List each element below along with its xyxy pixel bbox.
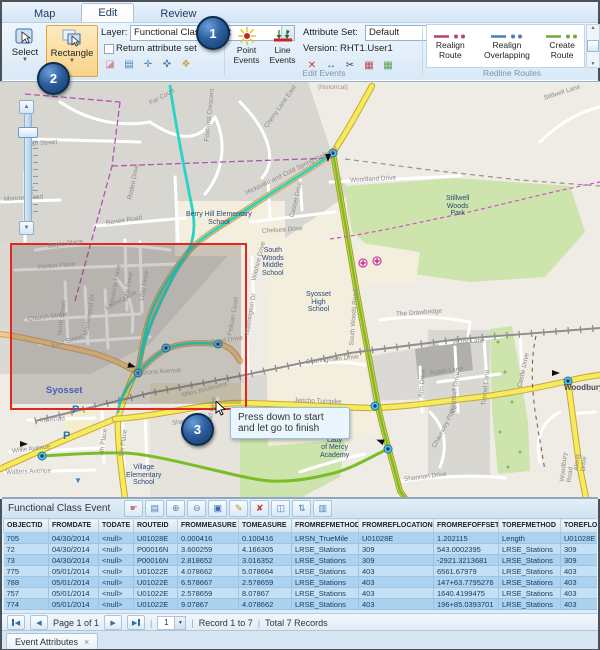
- select-icon: [14, 27, 36, 47]
- table-cell: 73: [4, 555, 49, 566]
- table-cell: U01022E: [134, 599, 178, 610]
- redline-button-label: Realign Overlapping: [474, 41, 541, 61]
- table-cell: 1640.4199475: [434, 588, 499, 599]
- parking-icon: P: [72, 404, 79, 416]
- ribbon-tab-bar: Map Edit Review: [2, 2, 598, 23]
- table-cell: LRSE_Stations: [292, 544, 359, 555]
- total-records-label: Total 7 Records: [265, 618, 328, 628]
- table-row[interactable]: 70504/30/2014<null>U01028E0.0004160.1004…: [4, 533, 598, 544]
- table-row[interactable]: 7304/30/2014<null>P00016N2.8186523.01635…: [4, 555, 598, 566]
- export-records-icon[interactable]: ▥: [313, 500, 332, 517]
- drain-marker-icon: ▼: [74, 476, 82, 485]
- table-row[interactable]: 75705/01/2014<null>U01022E2.5786598.0786…: [4, 588, 598, 599]
- table-cell: P00016N: [134, 544, 178, 555]
- zoom-to-selection-icon[interactable]: ⊕: [166, 500, 185, 517]
- sort-records-icon[interactable]: ⇅: [292, 500, 311, 517]
- application-window: Map Edit Review Select ▼ Rectangle ▼ Lay…: [0, 0, 600, 650]
- select-button[interactable]: Select ▼: [6, 25, 44, 75]
- tab-label: Event Attributes: [15, 637, 78, 647]
- tab-edit[interactable]: Edit: [81, 3, 134, 22]
- table-cell: LRSN_TrueMile: [292, 533, 359, 544]
- table-title: Functional Class Event: [8, 503, 110, 514]
- select-polygon-icon[interactable]: ❖: [178, 57, 194, 73]
- table-cell: 309: [359, 544, 434, 555]
- table-cell: <null>: [99, 533, 134, 544]
- realign-overlapping-button[interactable]: Realign Overlapping: [474, 32, 541, 61]
- table-cell: 9.07867: [178, 599, 239, 610]
- column-header[interactable]: TOMEASURE: [239, 519, 292, 533]
- zoom-slider-handle[interactable]: [18, 127, 38, 138]
- route-end-arrow-icon: [552, 370, 560, 376]
- table-cell: 05/01/2014: [49, 566, 99, 577]
- zoom-in-button[interactable]: ▲: [19, 100, 34, 114]
- column-header[interactable]: TOREFLOCATION: [561, 519, 598, 533]
- table-cell: 309: [359, 555, 434, 566]
- table-cell: 788: [4, 577, 49, 588]
- scroll-up-icon[interactable]: ▲: [588, 25, 598, 31]
- table-cell: 4.078662: [178, 566, 239, 577]
- map-tooltip: Press down to start and let go to finish: [230, 407, 350, 439]
- table-cell: 196+85.0393701: [434, 599, 499, 610]
- return-attribute-set-label: Return attribute set: [116, 43, 197, 54]
- table-cell: P00016N: [134, 555, 178, 566]
- parking-icon: P: [63, 430, 70, 442]
- attribute-set-label: Attribute Set:: [303, 27, 358, 38]
- table-cell: U01028E: [561, 533, 598, 544]
- table-cell: 543.0002395: [434, 544, 499, 555]
- separator: |: [150, 618, 152, 628]
- table-cell: LRSE_Stations: [499, 588, 561, 599]
- table-cell: 403: [359, 566, 434, 577]
- table-cell: 4.166305: [239, 544, 292, 555]
- table-cell: 309: [561, 555, 598, 566]
- table-cell: LRSE_Stations: [292, 566, 359, 577]
- realign-route-button[interactable]: Realign Route: [427, 32, 474, 61]
- table-cell: U01028E: [134, 533, 178, 544]
- page-number-input[interactable]: 1: [157, 616, 175, 630]
- select-line-icon[interactable]: ✜: [159, 57, 175, 73]
- redline-group-label: Redline Routes: [426, 68, 598, 78]
- next-page-button[interactable]: ▶: [104, 615, 122, 630]
- point-events-label: Point Events: [229, 46, 264, 66]
- table-cell: 0.000416: [178, 533, 239, 544]
- selection-mini-toolbar: ◪▤✛✜❖: [102, 57, 194, 73]
- table-cell: 2.578659: [239, 577, 292, 588]
- zoom-slider-ticks: [33, 141, 38, 216]
- tab-map[interactable]: Map: [18, 5, 71, 22]
- table-cell: <null>: [99, 599, 134, 610]
- table-cell: 72: [4, 544, 49, 555]
- table-cell: U01022E: [134, 566, 178, 577]
- previous-page-button[interactable]: ◀: [30, 615, 48, 630]
- eraser-icon[interactable]: ◪: [102, 57, 118, 73]
- redline-gallery: Realign RouteRealign OverlappingCreate R…: [426, 24, 585, 68]
- point-events-button[interactable]: Point Events: [229, 26, 264, 73]
- table-cell: 6561.67979: [434, 566, 499, 577]
- chevron-down-icon: ▼: [22, 58, 28, 62]
- column-header[interactable]: OBJECTID: [4, 519, 49, 533]
- selection-rectangle[interactable]: [10, 243, 247, 410]
- table-cell: <null>: [99, 544, 134, 555]
- scroll-down-icon[interactable]: ▼: [588, 61, 598, 67]
- table-cell: 147+63.7795276: [434, 577, 499, 588]
- chevron-down-icon[interactable]: ▼: [175, 616, 186, 630]
- table-cell: 705: [4, 533, 49, 544]
- table-cell: 05/01/2014: [49, 599, 99, 610]
- table-cell: 403: [561, 599, 598, 610]
- column-header[interactable]: TODATE: [99, 519, 134, 533]
- table-cell: 403: [359, 588, 434, 599]
- table-cell: LRSE_Stations: [292, 588, 359, 599]
- table-cell: LRSE_Stations: [292, 599, 359, 610]
- table-cell: 403: [561, 588, 598, 599]
- column-header[interactable]: FROMMEASURE: [178, 519, 239, 533]
- table-toolbar: ☛▤⊕⊖▣✎✘◫⇅▥: [122, 500, 332, 517]
- related-records-icon[interactable]: ◫: [271, 500, 290, 517]
- table-cell: 757: [4, 588, 49, 599]
- select-point-icon[interactable]: ✛: [140, 57, 156, 73]
- callout-3: 3: [181, 413, 214, 446]
- table-cell: LRSE_Stations: [499, 555, 561, 566]
- separator: |: [191, 618, 193, 628]
- table-cell: 6.578667: [178, 577, 239, 588]
- table-cell: 05/01/2014: [49, 588, 99, 599]
- column-header[interactable]: FROMREFMETHOD: [292, 519, 359, 533]
- route-end-arrow-icon: [20, 441, 28, 447]
- attribute-list-icon[interactable]: ▤: [121, 57, 137, 73]
- chevron-down-icon: ▼: [69, 59, 75, 63]
- redline-button-label: Realign Route: [427, 41, 474, 61]
- table-cell: 3.600259: [178, 544, 239, 555]
- table-header-row: OBJECTIDFROMDATETODATEROUTEIDFROMMEASURE…: [4, 519, 598, 533]
- table-cell: U01022E: [134, 577, 178, 588]
- clear-selection-icon[interactable]: ▤: [145, 500, 164, 517]
- table-cell: 04/30/2014: [49, 555, 99, 566]
- table-cell: 05/01/2014: [49, 577, 99, 588]
- line-events-button[interactable]: Line Events: [265, 26, 300, 73]
- table-row[interactable]: 78805/01/2014<null>U01022E6.5786672.5786…: [4, 577, 598, 588]
- table-cell: LRSE_Stations: [499, 566, 561, 577]
- column-header[interactable]: ROUTEID: [134, 519, 178, 533]
- redline-button-label: Create Route: [540, 41, 584, 61]
- table-cell: 3.016352: [239, 555, 292, 566]
- select-records-icon[interactable]: ☛: [124, 500, 143, 517]
- point-events-icon: [237, 26, 257, 46]
- table-cell: 4.078662: [239, 599, 292, 610]
- route-end-arrow-icon: [325, 154, 331, 162]
- edit-events-group-label: Edit Events: [226, 68, 422, 78]
- table-cell: Length: [499, 533, 561, 544]
- column-header[interactable]: FROMDATE: [49, 519, 99, 533]
- table-cell: 0.100416: [239, 533, 292, 544]
- table-cell: <null>: [99, 566, 134, 577]
- close-icon[interactable]: ×: [84, 637, 89, 647]
- table-cell: LRSE_Stations: [499, 577, 561, 588]
- table-cell: 403: [359, 577, 434, 588]
- rectangle-select-icon: [61, 28, 83, 48]
- first-page-button[interactable]: ◀: [7, 615, 25, 630]
- scroll-thumb[interactable]: [587, 40, 599, 52]
- create-route-button[interactable]: Create Route: [540, 32, 584, 61]
- return-attribute-set-checkbox[interactable]: [104, 44, 114, 54]
- table-cell: <null>: [99, 588, 134, 599]
- save-icon[interactable]: ▣: [208, 500, 227, 517]
- table-cell: 774: [4, 599, 49, 610]
- table-pager: ◀ ◀ Page 1 of 1 ▶ ▶ | 1 ▼ | Record 1 to …: [2, 613, 598, 631]
- zoom-out-button[interactable]: ▼: [19, 221, 34, 235]
- gallery-scrollbar[interactable]: ▲ ▼: [586, 24, 600, 68]
- column-header[interactable]: FROMREFLOCATION: [359, 519, 434, 533]
- attribute-table-panel: Functional Class Event ☛▤⊕⊖▣✎✘◫⇅▥ OBJECT…: [2, 497, 598, 615]
- ribbon-toolbar: Select ▼ Rectangle ▼ Layer: Functional C…: [2, 23, 598, 80]
- table-cell: 2.818652: [178, 555, 239, 566]
- separator: |: [258, 618, 260, 628]
- page-label: Page 1 of 1: [53, 618, 99, 628]
- table-row[interactable]: 7204/30/2014<null>P00016N3.6002594.16630…: [4, 544, 598, 555]
- table-cell: 775: [4, 566, 49, 577]
- column-header[interactable]: FROMREFOFFSET: [434, 519, 499, 533]
- group-separator: [422, 25, 423, 75]
- table-cell: 403: [359, 599, 434, 610]
- version-text: Version: RHT1.User1: [303, 43, 393, 54]
- table-cell: 8.07867: [239, 588, 292, 599]
- line-events-label: Line Events: [265, 46, 300, 66]
- table-cell: 04/30/2014: [49, 544, 99, 555]
- table-cell: 403: [561, 566, 598, 577]
- table-cell: 309: [561, 544, 598, 555]
- table-cell: -2921.3213681: [434, 555, 499, 566]
- table-cell: 2.578659: [178, 588, 239, 599]
- table-cell: 403: [561, 577, 598, 588]
- table-cell: 04/30/2014: [49, 533, 99, 544]
- line-events-icon: [272, 26, 294, 46]
- table-cell: LRSE_Stations: [292, 555, 359, 566]
- table-cell: 5.078664: [239, 566, 292, 577]
- record-range-label: Record 1 to 7: [199, 618, 253, 628]
- table-cell: LRSE_Stations: [499, 544, 561, 555]
- bottom-tab-bar: Event Attributes ×: [2, 630, 598, 649]
- tab-event-attributes[interactable]: Event Attributes ×: [6, 633, 98, 649]
- pan-to-selection-icon[interactable]: ⊖: [187, 500, 206, 517]
- table-cell: LRSE_Stations: [499, 599, 561, 610]
- mouse-cursor-icon: [215, 401, 227, 416]
- table-cell: U01028E: [359, 533, 434, 544]
- table-title-bar: Functional Class Event ☛▤⊕⊖▣✎✘◫⇅▥: [2, 499, 598, 518]
- table-cell: LRSE_Stations: [292, 577, 359, 588]
- column-header[interactable]: TOREFMETHOD: [499, 519, 561, 533]
- table-row[interactable]: 77405/01/2014<null>U01022E9.078674.07866…: [4, 599, 598, 610]
- layer-label: Layer:: [101, 27, 127, 38]
- table-cell: 1.202115: [434, 533, 499, 544]
- table-cell: <null>: [99, 555, 134, 566]
- attribute-set-value: Default: [369, 27, 399, 38]
- delete-records-icon[interactable]: ✘: [250, 500, 269, 517]
- edit-records-icon[interactable]: ✎: [229, 500, 248, 517]
- table-row[interactable]: 77505/01/2014<null>U01022E4.0786625.0786…: [4, 566, 598, 577]
- last-page-button[interactable]: ▶: [127, 615, 145, 630]
- table-cell: U01022E: [134, 588, 178, 599]
- table-grid: OBJECTIDFROMDATETODATEROUTEIDFROMMEASURE…: [3, 518, 597, 615]
- callout-1: 1: [196, 16, 230, 50]
- callout-2: 2: [37, 62, 70, 95]
- table-cell: <null>: [99, 577, 134, 588]
